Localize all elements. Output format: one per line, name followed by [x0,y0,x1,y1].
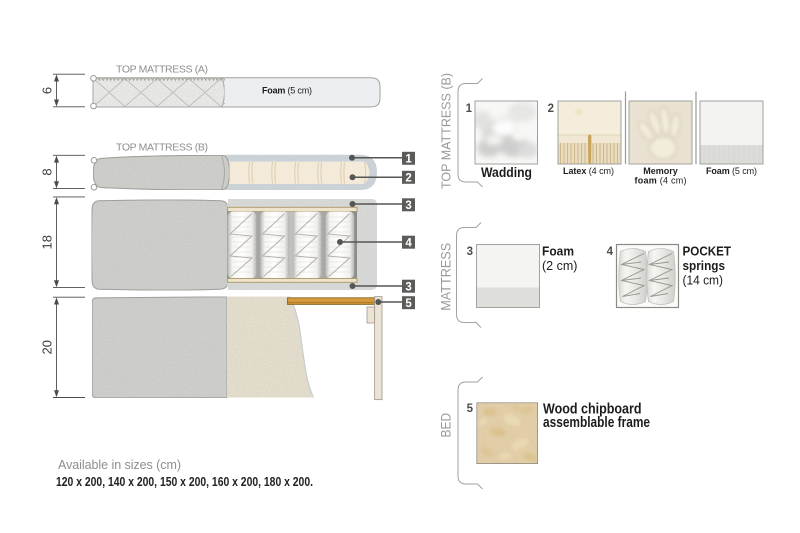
svg-text:3: 3 [405,281,411,293]
svg-text:120 x 200, 140 x 200, 150 x 20: 120 x 200, 140 x 200, 150 x 200, 160 x 2… [56,474,313,489]
svg-text:2: 2 [405,172,411,184]
svg-text:20: 20 [40,340,55,354]
svg-text:TOP MATTRESS (B): TOP MATTRESS (B) [439,73,454,189]
svg-text:1: 1 [466,103,473,115]
svg-text:Memory: Memory [643,166,678,176]
svg-text:5: 5 [467,403,474,415]
svg-text:TOP MATTRESS (B): TOP MATTRESS (B) [116,142,208,154]
svg-text:3: 3 [467,246,473,258]
svg-text:6: 6 [40,87,55,94]
svg-text:Latex (4 cm): Latex (4 cm) [563,166,614,176]
svg-text:foam (4 cm): foam (4 cm) [635,175,687,185]
svg-text:Foam (5 cm): Foam (5 cm) [706,166,757,176]
svg-text:18: 18 [40,235,55,249]
svg-text:4: 4 [405,237,412,249]
svg-text:3: 3 [405,200,411,212]
svg-text:2: 2 [548,103,554,115]
svg-text:(14 cm): (14 cm) [683,273,724,287]
svg-text:(2 cm): (2 cm) [542,259,577,273]
svg-text:Foam (5 cm): Foam (5 cm) [262,86,312,96]
svg-text:springs: springs [683,259,726,273]
svg-text:Wadding: Wadding [481,164,532,180]
svg-text:assemblable frame: assemblable frame [543,414,650,431]
svg-text:POCKET: POCKET [683,244,732,258]
svg-text:1: 1 [405,153,412,165]
svg-text:TOP MATTRESS (A): TOP MATTRESS (A) [116,64,208,76]
svg-text:8: 8 [40,168,55,175]
svg-text:5: 5 [405,298,412,310]
svg-text:4: 4 [607,246,614,258]
svg-text:MATTRESS: MATTRESS [438,243,454,311]
svg-text:BED: BED [438,413,454,438]
svg-text:Available in sizes (cm): Available in sizes (cm) [58,458,181,472]
svg-text:Foam: Foam [542,244,574,258]
